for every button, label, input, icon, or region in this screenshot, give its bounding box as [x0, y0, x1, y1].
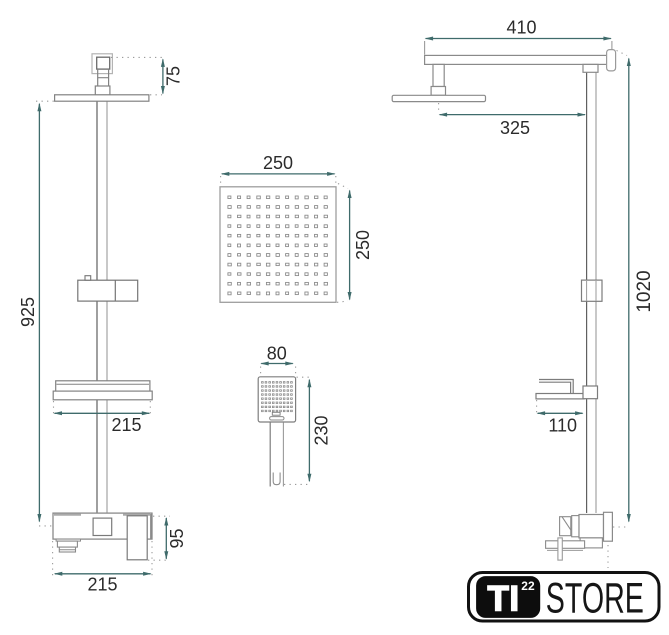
svg-text:TI: TI — [487, 580, 519, 619]
svg-text:325: 325 — [500, 118, 530, 138]
svg-text:1020: 1020 — [634, 270, 655, 312]
svg-text:410: 410 — [506, 18, 536, 38]
svg-text:STORE: STORE — [546, 574, 644, 622]
svg-text:215: 215 — [87, 575, 117, 595]
svg-text:230: 230 — [312, 415, 332, 445]
svg-text:75: 75 — [164, 66, 184, 86]
svg-text:95: 95 — [167, 528, 187, 548]
svg-text:22: 22 — [521, 579, 535, 593]
svg-text:110: 110 — [548, 416, 577, 436]
svg-text:215: 215 — [111, 415, 141, 435]
svg-text:250: 250 — [353, 230, 373, 260]
svg-text:925: 925 — [18, 297, 38, 327]
svg-text:80: 80 — [267, 344, 287, 364]
svg-text:250: 250 — [263, 153, 293, 173]
